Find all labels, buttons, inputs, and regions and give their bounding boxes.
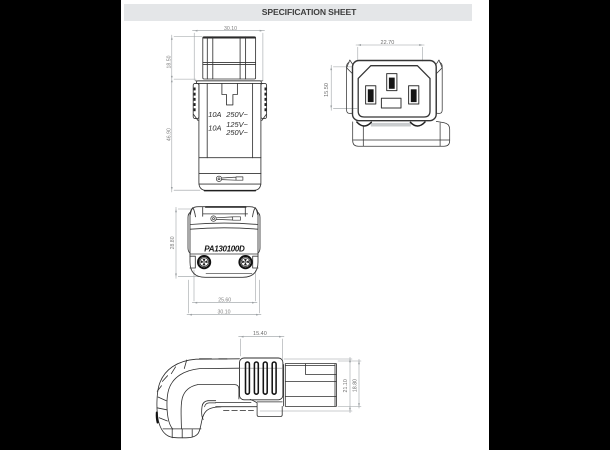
svg-text:25.60: 25.60 bbox=[218, 297, 231, 303]
svg-text:250V~: 250V~ bbox=[225, 110, 248, 119]
svg-text:18.80: 18.80 bbox=[352, 379, 358, 392]
svg-text:46.90: 46.90 bbox=[166, 128, 172, 141]
svg-text:10A: 10A bbox=[208, 123, 221, 132]
svg-text:15.40: 15.40 bbox=[253, 331, 267, 337]
svg-text:10A: 10A bbox=[208, 110, 221, 119]
svg-text:15.50: 15.50 bbox=[324, 83, 330, 97]
svg-text:30.10: 30.10 bbox=[218, 309, 231, 315]
svg-text:22.70: 22.70 bbox=[381, 40, 395, 46]
svg-text:21.10: 21.10 bbox=[343, 379, 349, 392]
svg-text:PA130100D: PA130100D bbox=[204, 245, 245, 254]
svg-text:30.10: 30.10 bbox=[224, 26, 237, 32]
svg-text:250V~: 250V~ bbox=[225, 128, 248, 137]
svg-text:18.50: 18.50 bbox=[166, 55, 172, 68]
svg-text:28.80: 28.80 bbox=[170, 236, 176, 249]
